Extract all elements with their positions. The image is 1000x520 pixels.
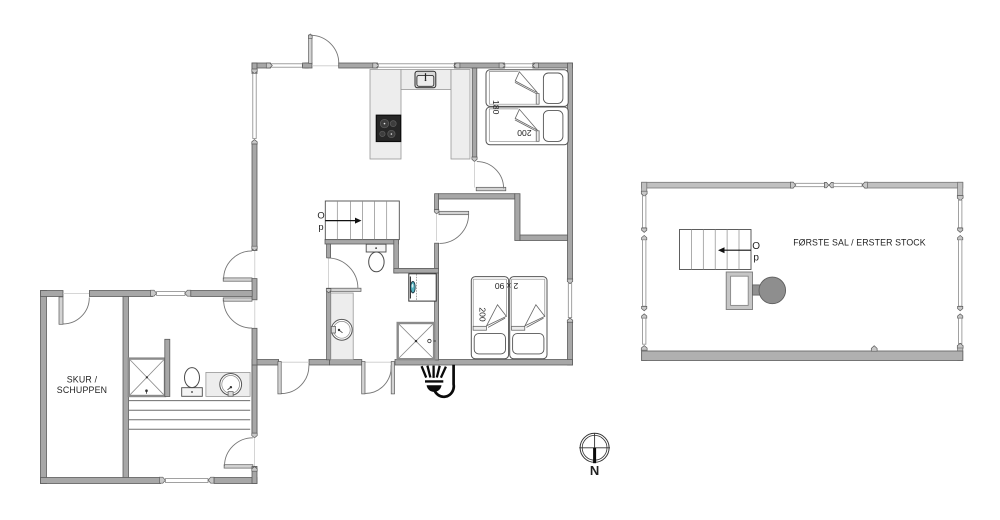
- svg-text:O: O: [752, 241, 760, 252]
- svg-text:2 x 90: 2 x 90: [495, 281, 519, 291]
- svg-text:FØRSTE SAL / ERSTER STOCK: FØRSTE SAL / ERSTER STOCK: [793, 237, 926, 247]
- svg-text:200: 200: [517, 128, 532, 138]
- svg-text:p: p: [318, 221, 323, 232]
- svg-text:200: 200: [478, 307, 488, 322]
- svg-text:O: O: [317, 210, 324, 221]
- svg-text:N: N: [590, 463, 599, 478]
- svg-text:p: p: [753, 252, 759, 263]
- svg-text:SCHUPPEN: SCHUPPEN: [57, 385, 107, 395]
- svg-text:SKUR /: SKUR /: [67, 375, 98, 385]
- svg-text:180: 180: [491, 100, 501, 115]
